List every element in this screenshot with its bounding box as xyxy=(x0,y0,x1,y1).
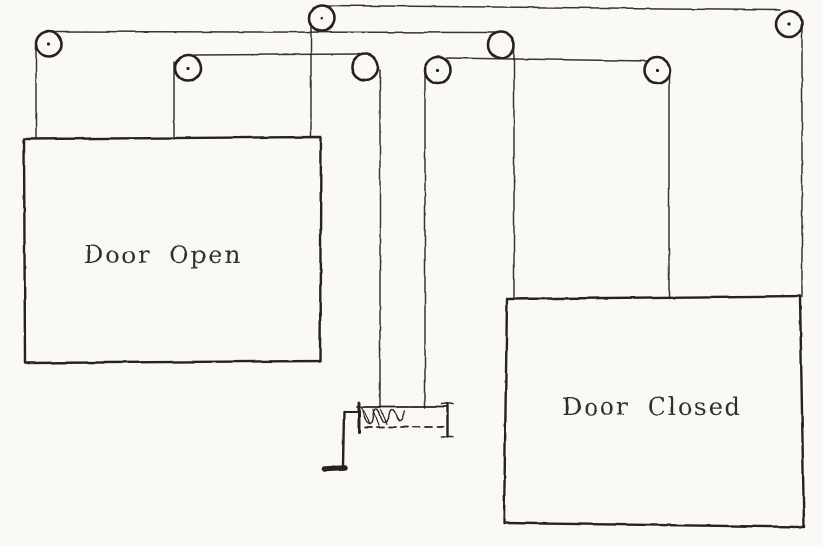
scan-grain-texture xyxy=(0,0,823,545)
scanned-diagram-page: Door Open Door Closed xyxy=(0,0,823,545)
door-open-label: Door Open xyxy=(84,241,242,269)
pulley-axle-dot xyxy=(436,68,439,71)
pulley-door-diagram-canvas: Door Open Door Closed xyxy=(0,0,823,545)
pulley-axle-dot xyxy=(47,42,50,45)
door-closed-label: Door Closed xyxy=(562,393,742,421)
pulley-axle-dot xyxy=(787,22,790,25)
crank-arm xyxy=(343,412,344,466)
pulley-axle-dot xyxy=(655,68,658,71)
pulley-axle-dot xyxy=(186,66,189,69)
crank-grip xyxy=(325,468,345,469)
rope-a-horizontal-run xyxy=(53,32,496,33)
pulley-axle-dot xyxy=(321,17,324,20)
rope-c-horizontal-run xyxy=(194,54,359,55)
